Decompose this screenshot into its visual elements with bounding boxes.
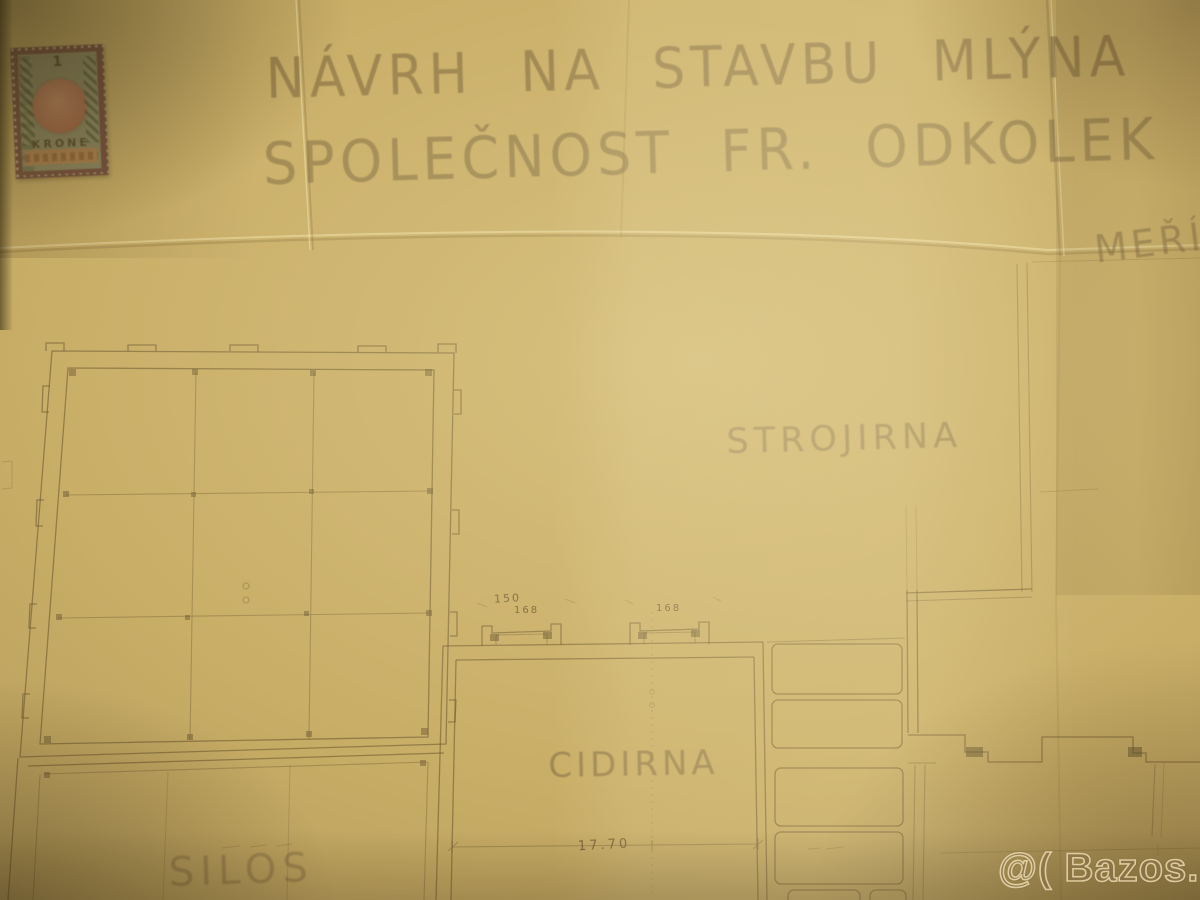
photo-of-floor-plan: NÁVRH NA STAVBU MLÝNA SPOLEČNOST FR. ODK…: [0, 0, 1200, 900]
dimension-cidirna-width: 17.70: [578, 837, 631, 855]
dimension-door-left-height: 168: [514, 605, 539, 616]
strojirna-area-walls: [1017, 258, 1200, 592]
dimension-door-left-width: 150: [494, 591, 522, 605]
stamp-frame: 1 KRONE: [13, 47, 105, 176]
stamp-ornament-field: 1 KRONE: [17, 51, 101, 171]
revenue-stamp: 1 KRONE: [10, 44, 109, 179]
stamp-medallion: [31, 78, 87, 134]
room-label-strojirna: STROJIRNA: [726, 416, 963, 462]
stamp-value: 1: [18, 52, 98, 71]
east-wing-rooms: [767, 505, 1200, 900]
stamp-bottom-band: [25, 147, 99, 165]
room-label-cidirna: CIDIRNA: [548, 743, 719, 786]
bazos-watermark: @( Bazos.cz: [998, 846, 1200, 891]
dimension-door-right-height: 168: [656, 603, 681, 614]
room-label-silos: SILOS: [168, 845, 314, 896]
silos-upper-grid-building: [2, 343, 461, 757]
